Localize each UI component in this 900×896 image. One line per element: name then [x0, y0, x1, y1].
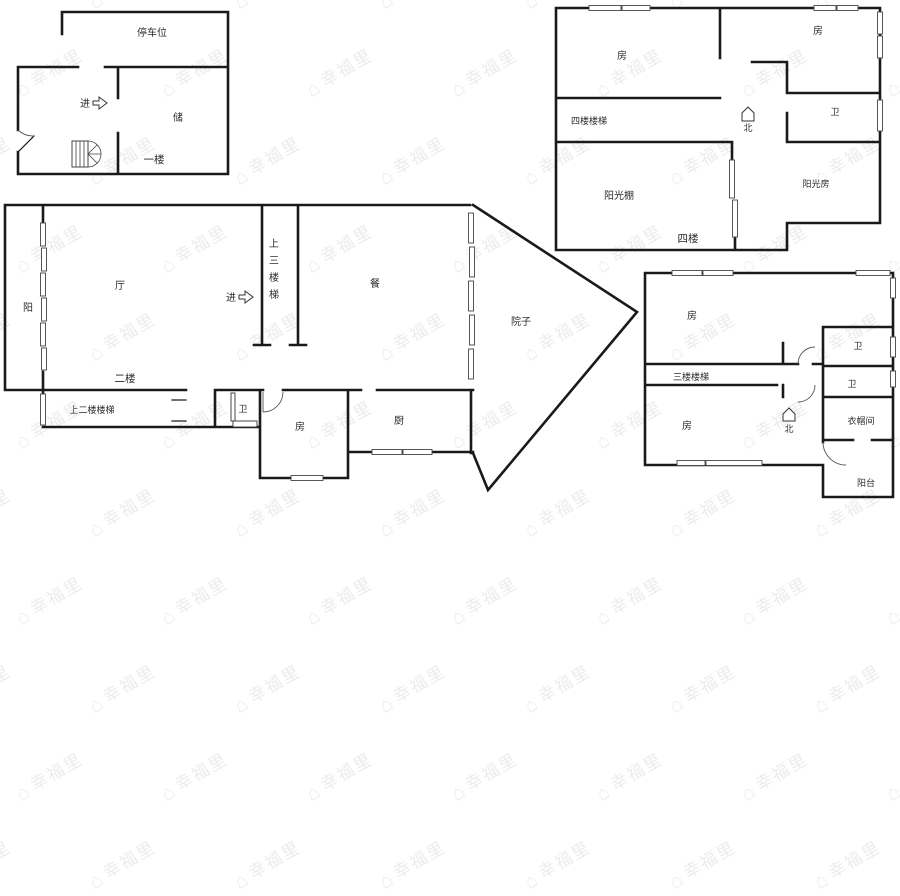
storage-label: 储: [173, 111, 183, 124]
window: [856, 271, 890, 276]
window: [677, 461, 705, 466]
bath-label: 卫: [830, 107, 839, 117]
floor4-plan: 房 房 四楼楼梯 卫 北 阳光棚 阳光房 四楼: [556, 6, 883, 251]
window: [622, 6, 650, 11]
floor2-plan: 阳 厅 进 上三楼梯 餐 院子 二楼 上二楼楼梯 卫 房 厨: [5, 205, 637, 490]
room-top-label: 房: [687, 309, 697, 322]
hall-label: 厅: [115, 281, 125, 292]
parking-label: 停车位: [137, 26, 167, 39]
kitchen-window-1: [372, 450, 402, 455]
entry-label: 进: [80, 98, 90, 110]
sun-room-label: 阳光房: [802, 178, 829, 189]
stairs-label: 三楼楼梯: [673, 371, 709, 382]
room-right-label: 房: [813, 24, 823, 37]
entry-label: 进: [226, 292, 236, 304]
floor2-label: 二楼: [115, 372, 136, 385]
window: [891, 337, 896, 357]
window: [706, 461, 762, 466]
balcony-label: 阳台: [857, 477, 875, 488]
stairs-up2-label: 上二楼楼梯: [69, 404, 114, 415]
spiral-stair-icon: [72, 141, 101, 167]
window: [878, 12, 883, 34]
window: [891, 371, 896, 387]
window: [672, 271, 702, 276]
window: [703, 271, 733, 276]
north-arrow-icon: [742, 107, 754, 121]
yard-label: 院子: [511, 315, 531, 328]
bath-fixture: [231, 393, 235, 421]
room-window: [291, 476, 323, 481]
room-left-label: 房: [617, 49, 627, 62]
window: [814, 6, 836, 11]
floor1-plan: 停车位 进 储 一楼: [18, 12, 228, 174]
window: [878, 100, 883, 131]
bath-top-label: 卫: [853, 341, 862, 351]
window: [891, 278, 896, 298]
north-label: 北: [784, 424, 793, 434]
window: [589, 6, 621, 11]
kitchen-window-2: [403, 450, 432, 455]
window: [878, 36, 883, 58]
floorplan-drawing: 停车位 进 储 一楼: [0, 0, 900, 896]
dining-label: 餐: [370, 277, 380, 290]
stairs-up3-label: 上三楼梯: [267, 238, 279, 306]
floor4-label: 四楼: [678, 232, 699, 245]
yard-window-wall: [469, 213, 475, 379]
north-arrow-icon: [783, 408, 795, 421]
kitchen-label: 厨: [394, 415, 404, 427]
north-label: 北: [743, 123, 752, 133]
bath-sink: [233, 421, 257, 427]
floor1-label: 一楼: [144, 153, 165, 166]
sun-shed-label: 阳光棚: [604, 189, 634, 202]
balcony-window: [41, 223, 47, 425]
floorplan-canvas: ⌂幸福里⌂幸福里⌂幸福里⌂幸福里⌂幸福里⌂幸福里⌂幸福里⌂幸福里⌂幸福里⌂幸福里…: [0, 0, 900, 896]
stepped-glass-wall: [730, 160, 738, 237]
stairs-label: 四楼楼梯: [571, 115, 607, 126]
room-label: 房: [295, 420, 305, 433]
room-door-arc: [263, 392, 283, 412]
entry-arrow-icon: [93, 97, 107, 109]
balcony-label: 阳: [23, 302, 33, 314]
bath-label: 卫: [238, 404, 247, 414]
floor3-plan: 房 三楼楼梯 房 卫 卫 衣帽间 阳台 北: [645, 271, 896, 498]
cloakroom-label: 衣帽间: [847, 415, 874, 426]
room-bottom-label: 房: [682, 419, 692, 432]
window: [837, 6, 858, 11]
bath-mid-label: 卫: [847, 379, 856, 389]
entry-arrow-icon: [239, 291, 253, 303]
